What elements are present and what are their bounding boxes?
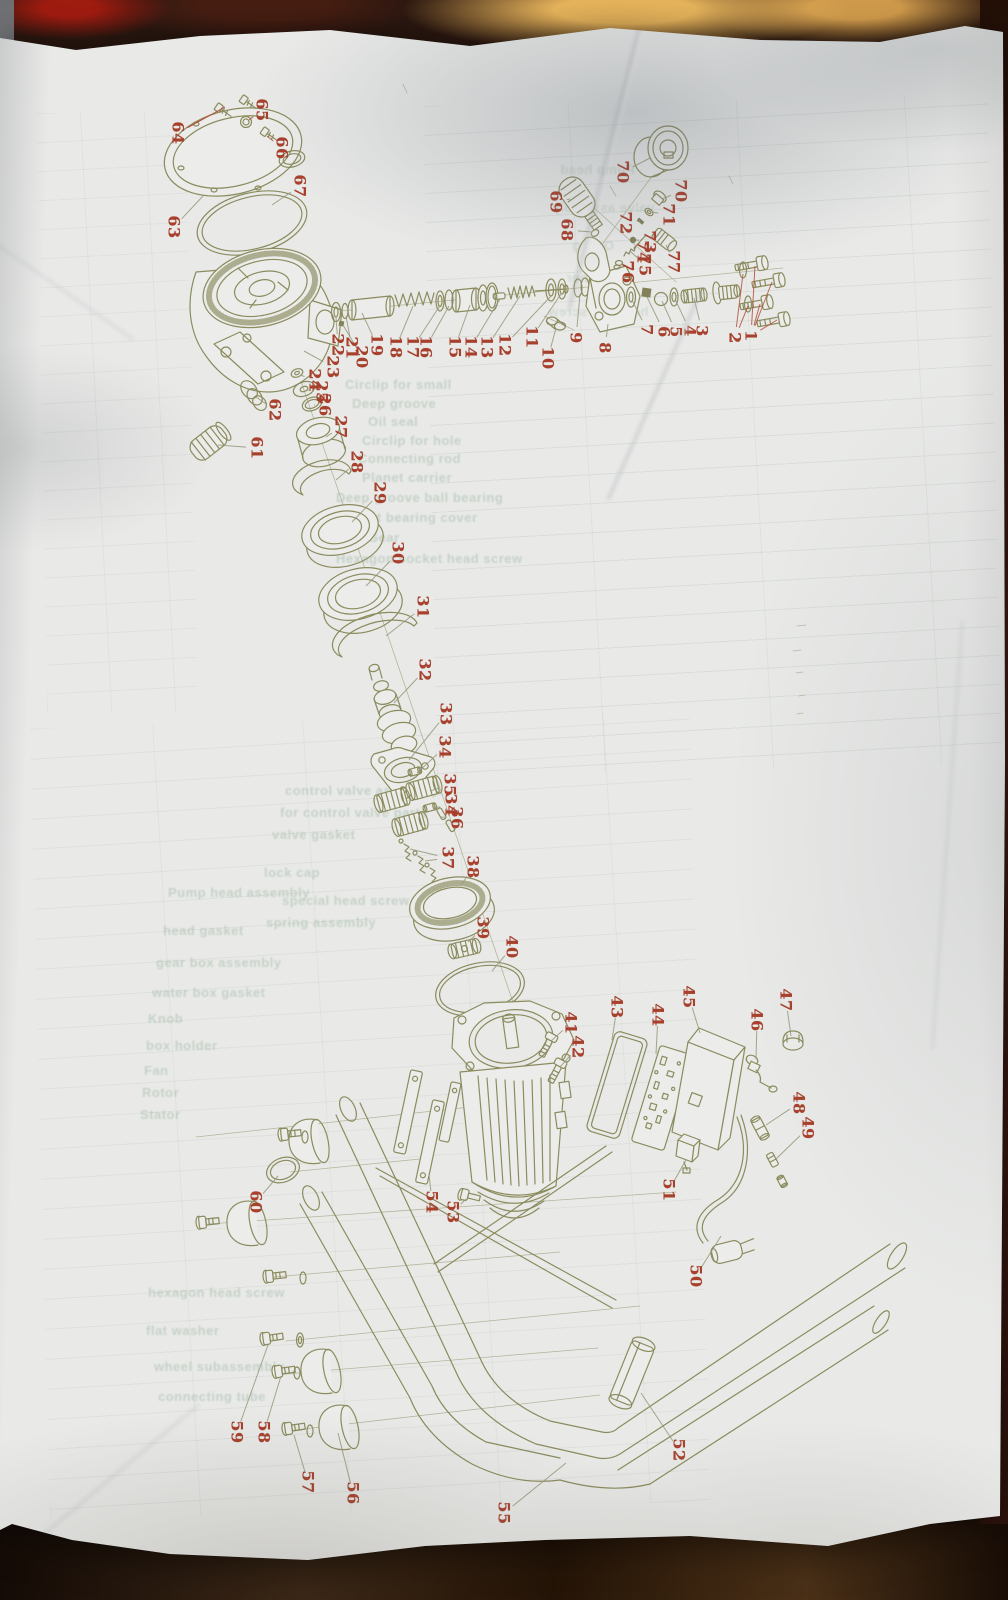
- part-number-label-75: 75: [636, 253, 655, 276]
- part-number-label-50: 50: [687, 1264, 706, 1287]
- part-number-label-67: 67: [291, 174, 310, 197]
- part-number-label-1: 1: [742, 330, 761, 342]
- part-number-label-55: 55: [495, 1501, 514, 1524]
- paper-sheet-wrapper: Pump headvalve assemblyO-ringwasherhexag…: [0, 0, 1008, 1600]
- part-number-label-58: 58: [255, 1420, 274, 1443]
- part-number-label-65: 65: [253, 98, 272, 121]
- part-number-label-9: 9: [567, 332, 586, 344]
- part-number-label-41: 41: [562, 1011, 581, 1034]
- part-number-label-51: 51: [660, 1178, 679, 1201]
- part-number-label-28: 28: [348, 450, 367, 473]
- part-number-label-36: 36: [448, 806, 467, 829]
- part-number-label-34: 34: [436, 735, 455, 758]
- part-number-label-47: 47: [777, 988, 796, 1011]
- part-number-label-49: 49: [799, 1116, 818, 1139]
- photo-of-parts-diagram: Pump headvalve assemblyO-ringwasherhexag…: [0, 0, 1008, 1600]
- part-number-label-38: 38: [464, 855, 483, 878]
- part-number-label-68: 68: [558, 218, 577, 241]
- part-number-label-61: 61: [248, 436, 267, 459]
- part-number-label-70: 70: [672, 179, 691, 202]
- part-number-label-66: 66: [273, 136, 292, 159]
- part-number-labels-layer: 6465666763222120191817161514131211109823…: [0, 0, 1008, 1600]
- part-number-label-44: 44: [649, 1003, 668, 1026]
- part-number-label-77: 77: [665, 250, 684, 273]
- part-number-label-64: 64: [169, 121, 188, 144]
- part-number-label-29: 29: [371, 481, 390, 504]
- part-number-label-46: 46: [748, 1008, 767, 1031]
- part-number-label-8: 8: [596, 342, 615, 354]
- part-number-label-42: 42: [569, 1035, 588, 1058]
- part-number-label-23: 23: [324, 355, 343, 378]
- part-number-label-56: 56: [344, 1481, 363, 1504]
- part-number-label-32: 32: [416, 658, 435, 681]
- part-number-label-76: 76: [619, 260, 638, 283]
- part-number-label-59: 59: [228, 1420, 247, 1443]
- part-number-label-27: 27: [332, 415, 351, 438]
- part-number-label-19: 19: [368, 333, 387, 356]
- part-number-label-63: 63: [165, 215, 184, 238]
- part-number-label-16: 16: [417, 335, 436, 358]
- part-number-label-11: 11: [523, 325, 542, 348]
- part-number-label-26: 26: [316, 393, 335, 416]
- part-number-label-54: 54: [423, 1190, 442, 1213]
- part-number-label-45: 45: [680, 985, 699, 1008]
- part-number-label-39: 39: [474, 916, 493, 939]
- part-number-label-60: 60: [247, 1190, 266, 1213]
- part-number-label-52: 52: [670, 1438, 689, 1461]
- part-number-label-30: 30: [389, 541, 408, 564]
- part-number-label-12: 12: [496, 333, 515, 356]
- part-number-label-71: 71: [660, 203, 679, 226]
- paper-sheet: Pump headvalve assemblyO-ringwasherhexag…: [0, 0, 1008, 1600]
- part-number-label-10: 10: [539, 346, 558, 369]
- part-number-label-40: 40: [503, 935, 522, 958]
- part-number-label-69: 69: [547, 190, 566, 213]
- part-number-label-53: 53: [444, 1200, 463, 1223]
- part-number-label-3: 3: [693, 325, 712, 337]
- part-number-label-70: 70: [614, 160, 633, 183]
- part-number-label-62: 62: [266, 398, 285, 421]
- part-number-label-37: 37: [439, 846, 458, 869]
- part-number-label-72: 72: [617, 211, 636, 234]
- part-number-label-48: 48: [790, 1091, 809, 1114]
- part-number-label-31: 31: [414, 595, 433, 618]
- part-number-label-33: 33: [437, 702, 456, 725]
- part-number-label-43: 43: [608, 995, 627, 1018]
- part-number-label-13: 13: [478, 335, 497, 358]
- part-number-label-57: 57: [299, 1470, 318, 1493]
